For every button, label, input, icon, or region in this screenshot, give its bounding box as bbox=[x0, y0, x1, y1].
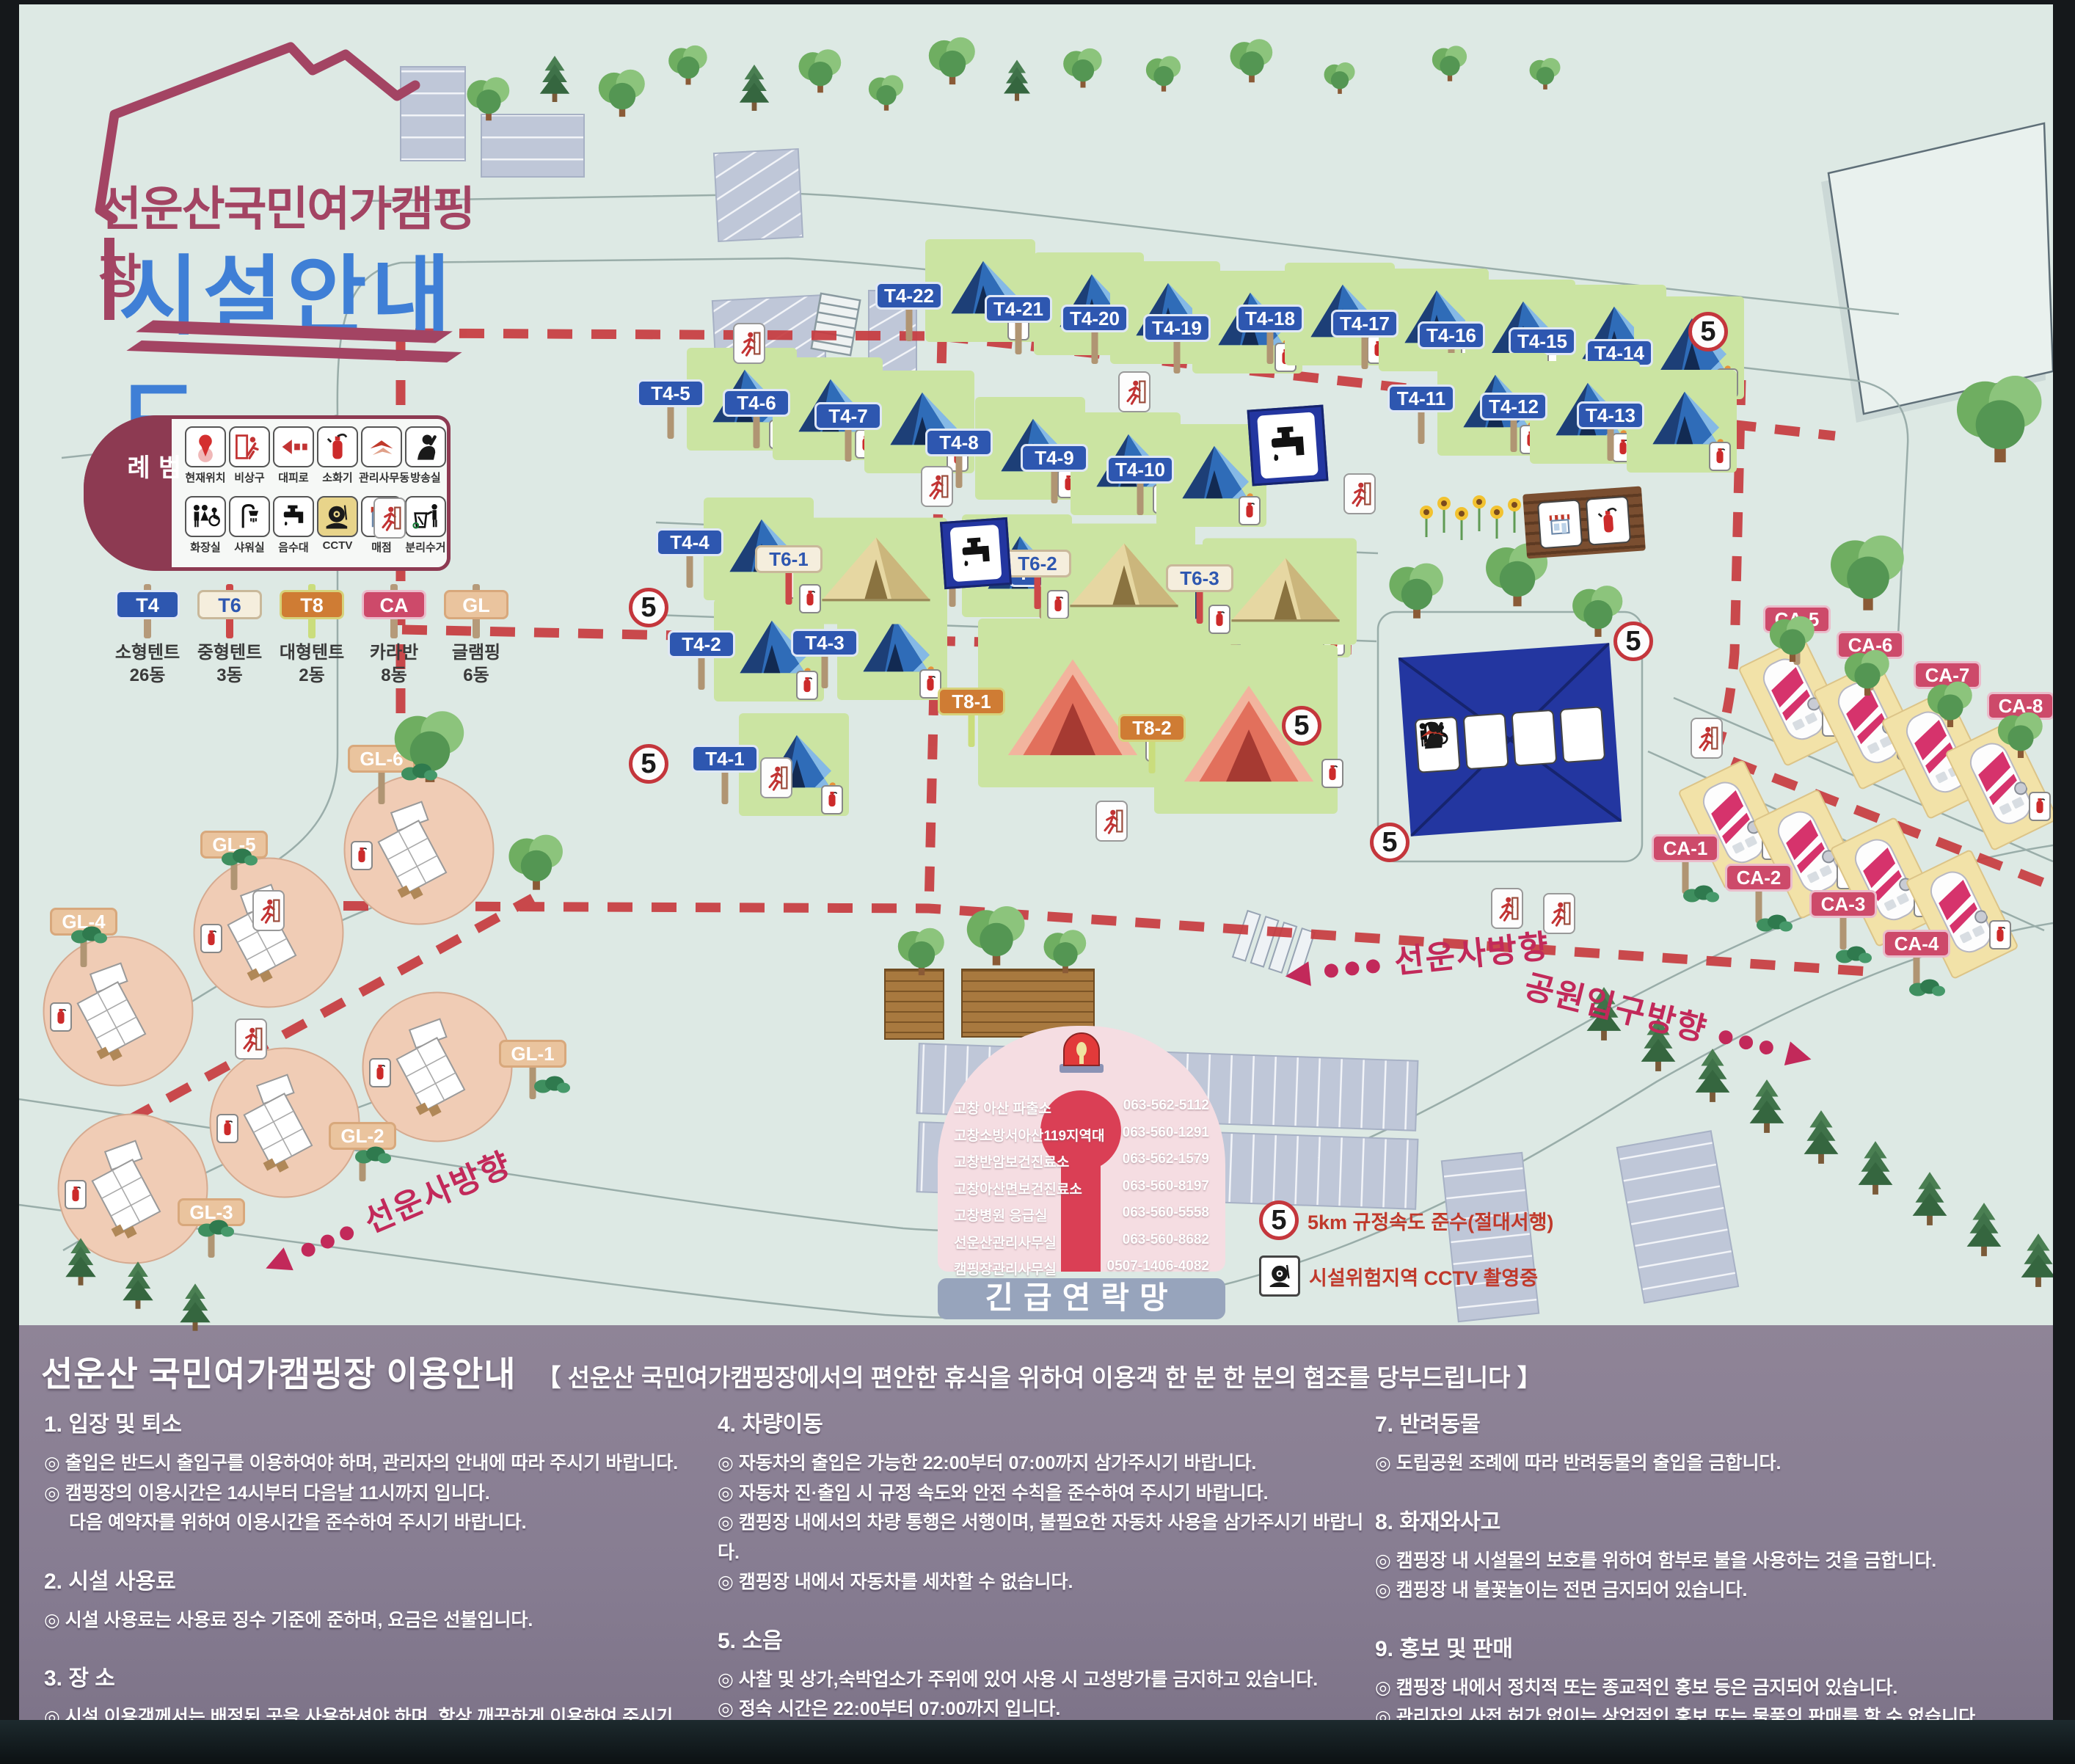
rule-item: ◎ 도립공원 조례에 따라 반려동물의 출입을 금합니다. bbox=[1375, 1448, 2043, 1479]
tree-pine bbox=[2019, 1232, 2053, 1293]
contact-phone: 063-562-5112 bbox=[1123, 1098, 1209, 1118]
rule-section: 9. 홍보 및 판매◎ 캠핑장 내에서 정치적 또는 종교적인 홍보 등은 금지… bbox=[1375, 1630, 2043, 1721]
contact-name: 선운산관리사무실 bbox=[954, 1232, 1057, 1252]
site-sign: T4-6 bbox=[723, 389, 790, 417]
site-sign: CA-1 bbox=[1652, 834, 1719, 862]
legend-item-pin: 현재위치 bbox=[183, 426, 228, 485]
tree-deciduous bbox=[1762, 608, 1822, 671]
tree-deciduous bbox=[500, 825, 572, 901]
office-icon bbox=[1511, 710, 1557, 767]
rule-section: 2. 시설 사용료◎ 시설 사용료는 사용료 징수 기준에 준하며, 요금은 선… bbox=[44, 1563, 690, 1636]
fire-extinguisher-icon bbox=[65, 1180, 87, 1209]
site-type-label: 글램핑6동 bbox=[436, 641, 517, 687]
site-sign: T4-3 bbox=[791, 629, 858, 657]
rule-item: ◎ 캠핑장 내에서 자동차를 세차할 수 없습니다. bbox=[718, 1567, 1371, 1597]
site-sign: T6-3 bbox=[1166, 564, 1233, 592]
tree-deciduous bbox=[922, 29, 983, 95]
rule-item: ◎ 캠핑장 내 불꽃놀이는 전면 금지되어 있습니다. bbox=[1375, 1575, 2043, 1606]
site-type-code: CA bbox=[362, 590, 426, 619]
site-type-code: GL bbox=[444, 590, 508, 619]
store-icon bbox=[1537, 499, 1583, 549]
tree-deciduous bbox=[591, 62, 653, 127]
legend-item-label: 관리사무동 bbox=[359, 470, 404, 485]
bush bbox=[1682, 881, 1720, 907]
contact-name: 고창 아산 파출소 bbox=[954, 1098, 1051, 1118]
legend-item-label: CCTV bbox=[315, 539, 360, 552]
rules-column-2: 4. 차량이동◎ 자동차의 출입은 가능한 22:00부터 07:00까지 삼가… bbox=[718, 1406, 1371, 1720]
usage-guide-header: 선운산 국민여가캠핑장 이용안내 【 선운산 국민여가캠핑장에서의 편안한 휴식… bbox=[41, 1346, 1542, 1396]
bush bbox=[70, 922, 108, 948]
fire-extinguisher-icon bbox=[369, 1058, 391, 1087]
rule-section-title: 7. 반려동물 bbox=[1375, 1406, 2043, 1438]
fire-extinguisher-icon bbox=[1239, 496, 1261, 525]
rule-item: 다음 예약자를 위하여 이용시간을 준수하여 주시기 바랍니다. bbox=[44, 1508, 690, 1538]
site-sign: T8-1 bbox=[938, 688, 1005, 715]
emergency-exit-icon bbox=[1095, 801, 1128, 842]
site-sign: T4-8 bbox=[925, 429, 993, 456]
drinking-fountain-1 bbox=[940, 517, 1012, 589]
broadcast-icon bbox=[405, 426, 446, 467]
fire-extinguisher-icon bbox=[351, 841, 373, 870]
rule-item: ◎ 시설 이용객께서는 배정된 곳을 사용하셔야 하며, 항상 깨끗하게 이용하… bbox=[44, 1702, 690, 1720]
fire-extinguisher-icon bbox=[796, 671, 818, 700]
site-sign: T4-7 bbox=[814, 402, 882, 430]
tree-deciduous bbox=[1820, 522, 1917, 624]
fire-extinguisher-icon bbox=[50, 1002, 72, 1032]
speed-limit-sign: 5 bbox=[1370, 823, 1410, 862]
fire-extinguisher-icon bbox=[216, 1114, 238, 1143]
bush bbox=[1834, 942, 1872, 968]
rule-section-title: 1. 입장 및 퇴소 bbox=[44, 1406, 690, 1438]
sign-frame-bottom bbox=[0, 1720, 2075, 1764]
site-type-gl: GL 글램핑6동 bbox=[436, 584, 517, 687]
rule-item: ◎ 자동차 진·출입 시 규정 속도와 안전 수칙을 준수하여 주시기 바랍니다… bbox=[718, 1479, 1371, 1509]
emergency-exit-icon bbox=[1543, 893, 1575, 934]
bush bbox=[400, 759, 438, 785]
legend-item-shower: 샤워실 bbox=[227, 496, 272, 555]
contact-phone: 063-560-8682 bbox=[1123, 1232, 1209, 1252]
speed-limit-sign: 5 bbox=[629, 744, 668, 784]
rule-item: ◎ 캠핑장 내 시설물의 보호를 위하여 함부로 불을 사용하는 것을 금합니다… bbox=[1375, 1546, 2043, 1576]
tree-deciduous bbox=[864, 69, 910, 119]
tree-deciduous bbox=[958, 896, 1035, 977]
site-sign: T4-21 bbox=[985, 295, 1052, 323]
site-sign: CA-3 bbox=[1809, 890, 1877, 918]
site-sign: T4-10 bbox=[1106, 456, 1174, 484]
site-sign: T4-22 bbox=[875, 282, 943, 310]
legend-label: 범 례 bbox=[120, 454, 183, 532]
shower-icon bbox=[229, 496, 270, 537]
site-sign: T4-9 bbox=[1021, 444, 1088, 472]
tap-icon bbox=[949, 525, 1002, 582]
tree-pine bbox=[64, 1236, 98, 1291]
cctv-icon bbox=[317, 496, 358, 537]
cctv-icon bbox=[1259, 1255, 1300, 1297]
site-sign: T8-2 bbox=[1118, 714, 1186, 742]
site-sign: T4-13 bbox=[1577, 401, 1644, 429]
glamping-footprint bbox=[364, 793, 474, 907]
site-type-code: T4 bbox=[115, 590, 180, 619]
emergency-contact-row: 고창아산면보건진료소063-560-8197 bbox=[954, 1178, 1209, 1198]
rule-item: ◎ 시설 사용료는 사용료 징수 기준에 준하며, 요금은 선불입니다. bbox=[44, 1606, 690, 1636]
speed-limit-sign: 5 bbox=[629, 588, 668, 627]
bush bbox=[1755, 911, 1793, 936]
legend-box: 범 례 현재위치 비상구 대피로 소화기 관리사무동 방송실 화장실 샤워실 bbox=[84, 415, 451, 571]
rule-section: 1. 입장 및 퇴소◎ 출입은 반드시 출입구를 이용하여야 하며, 관리자의 … bbox=[44, 1406, 690, 1538]
contact-name: 고창아산면보건진료소 bbox=[954, 1178, 1082, 1198]
tree-deciduous bbox=[891, 920, 952, 985]
usage-guide-subtitle: 【 선운산 국민여가캠핑장에서의 편안한 휴식을 위하여 이용객 한 분 한 분… bbox=[536, 1358, 1541, 1393]
emergency-exit-icon bbox=[373, 498, 406, 539]
legend-item-recycle: 분리수거 bbox=[403, 496, 448, 555]
contact-phone: 063-560-1291 bbox=[1123, 1125, 1209, 1145]
emergency-panel-title: 긴급연락망 bbox=[938, 1278, 1225, 1319]
tent-icon bbox=[1227, 552, 1344, 628]
restroom-icon bbox=[185, 496, 226, 537]
tree-pine bbox=[738, 63, 771, 117]
site-type-label: 카라반8동 bbox=[354, 641, 434, 687]
tree-pine bbox=[1002, 59, 1032, 106]
speed-note: 5 5km 규정속도 준수(절대서행) bbox=[1259, 1200, 1553, 1240]
legend-item-label: 현재위치 bbox=[183, 470, 228, 485]
fire-extinguisher-icon bbox=[2029, 792, 2051, 821]
site-sign: T4-15 bbox=[1509, 327, 1576, 355]
legend-item-arrow: 대피로 bbox=[271, 426, 316, 485]
legend-item-exit: 비상구 bbox=[227, 426, 272, 485]
fire-extinguisher-icon bbox=[1047, 590, 1069, 619]
fire-extinguisher-icon bbox=[799, 584, 821, 613]
emergency-exit-icon bbox=[760, 757, 792, 798]
legend-item-label: 방송실 bbox=[403, 470, 448, 485]
site-type-t8: T8 대형텐트2동 bbox=[271, 584, 352, 687]
legend-item-label: 음수대 bbox=[271, 539, 316, 555]
tree-deciduous bbox=[1944, 361, 2053, 478]
site-type-label: 대형텐트2동 bbox=[271, 641, 352, 687]
fire-extinguisher-icon bbox=[1208, 605, 1230, 634]
tree-deciduous bbox=[1920, 674, 1980, 737]
rule-section-title: 9. 홍보 및 판매 bbox=[1375, 1630, 2043, 1663]
rules-column-1: 1. 입장 및 퇴소◎ 출입은 반드시 출입구를 이용하여야 하며, 관리자의 … bbox=[44, 1406, 690, 1720]
siren-icon bbox=[1055, 1032, 1108, 1074]
rule-section-title: 5. 소음 bbox=[718, 1622, 1371, 1655]
tree-pine bbox=[1911, 1170, 1949, 1231]
rule-item: ◎ 정숙 시간은 22:00부터 07:00까지 입니다. bbox=[718, 1694, 1371, 1720]
tent-icon bbox=[1065, 537, 1183, 613]
ext-icon bbox=[1586, 496, 1631, 546]
rule-section-title: 3. 장 소 bbox=[44, 1660, 690, 1692]
rule-item: ◎ 자동차의 출입은 가능한 22:00부터 07:00까지 삼가주시기 바랍니… bbox=[718, 1448, 1371, 1479]
rule-section: 7. 반려동물◎ 도립공원 조례에 따라 반려동물의 출입을 금합니다. bbox=[1375, 1406, 2043, 1479]
site-sign: T4-5 bbox=[637, 379, 704, 407]
tree-deciduous bbox=[1057, 42, 1109, 97]
ext-icon bbox=[317, 426, 358, 467]
bush bbox=[220, 845, 258, 870]
emergency-contact-row: 고창병원 응급실063-560-5558 bbox=[954, 1205, 1209, 1225]
emergency-contact-row: 선운산관리사무실063-560-8682 bbox=[954, 1232, 1209, 1252]
emergency-contacts-panel: 고창 아산 파출소063-562-5112고창소방서아산119지역대063-56… bbox=[938, 1026, 1225, 1319]
site-sign: T4-12 bbox=[1480, 393, 1547, 420]
campground-map: T4-22 T4-21 T4-20 T4-19 T4-18 T4-17 T4-1… bbox=[19, 4, 2053, 1325]
legend-item-label: 분리수거 bbox=[403, 539, 448, 555]
fire-extinguisher-icon bbox=[1989, 920, 2011, 950]
speed-limit-sign: 5 bbox=[1282, 706, 1321, 746]
facility-map-sign: T4-22 T4-21 T4-20 T4-19 T4-18 T4-17 T4-1… bbox=[19, 4, 2053, 1720]
emergency-contact-row: 고창소방서아산119지역대063-560-1291 bbox=[954, 1125, 1209, 1145]
shower-icon bbox=[1463, 712, 1509, 770]
contact-name: 고창소방서아산119지역대 bbox=[954, 1125, 1104, 1145]
tree-deciduous bbox=[1037, 922, 1094, 983]
tent-icon bbox=[817, 531, 935, 608]
fire-extinguisher-icon bbox=[200, 924, 222, 953]
emergency-exit-icon bbox=[733, 323, 765, 364]
legend-item-label: 매점 bbox=[359, 539, 404, 555]
emergency-exit-icon bbox=[1691, 718, 1723, 759]
glamping-footprint bbox=[78, 1132, 188, 1246]
site-type-ca: CA 카라반8동 bbox=[354, 584, 434, 687]
legend-grid: 현재위치 비상구 대피로 소화기 관리사무동 방송실 화장실 샤워실 음수대 C… bbox=[183, 426, 447, 566]
tree-deciduous bbox=[1525, 53, 1566, 98]
legend-item-label: 비상구 bbox=[227, 470, 272, 485]
site-sign: T4-19 bbox=[1143, 314, 1211, 342]
emergency-exit-icon bbox=[1343, 473, 1376, 514]
tree-deciduous bbox=[1381, 554, 1453, 630]
rule-section: 3. 장 소◎ 시설 이용객께서는 배정된 곳을 사용하셔야 하며, 항상 깨끗… bbox=[44, 1660, 690, 1720]
contact-name: 캠핑장관리사무실 bbox=[954, 1258, 1057, 1278]
tree-deciduous bbox=[1427, 40, 1473, 90]
rule-section-title: 4. 차량이동 bbox=[718, 1406, 1371, 1438]
legend-item-label: 샤워실 bbox=[227, 539, 272, 555]
tree-pine bbox=[1856, 1140, 1895, 1200]
bush bbox=[197, 1216, 235, 1242]
legend-item-broadcast: 방송실 bbox=[403, 426, 448, 485]
glamping-footprint bbox=[382, 1010, 492, 1124]
site-sign: T4-16 bbox=[1418, 321, 1485, 349]
rule-item: ◎ 캠핑장의 이용시간은 14시부터 다음날 11시까지 입니다. bbox=[44, 1479, 690, 1509]
rule-item: ◎ 관리자의 사전 허가 없이는 상업적인 홍보 또는 물품의 판매를 할 수 … bbox=[1375, 1702, 2043, 1720]
legend-item-ext: 소화기 bbox=[315, 426, 360, 485]
rule-item: ◎ 사찰 및 상가,숙박업소가 주위에 있어 사용 시 고성방가를 금지하고 있… bbox=[718, 1665, 1371, 1695]
bush bbox=[533, 1072, 571, 1098]
tap-icon bbox=[273, 496, 314, 537]
tree-deciduous bbox=[1319, 57, 1360, 102]
tree-deciduous bbox=[1141, 50, 1187, 100]
rule-item: ◎ 캠핑장 내에서의 차량 통행은 서행이며, 불필요한 자동차 사용을 삼가주… bbox=[718, 1508, 1371, 1567]
legend-item-label: 소화기 bbox=[315, 470, 360, 485]
site-type-code: T8 bbox=[280, 590, 344, 619]
restroom-building bbox=[1398, 643, 1622, 836]
site-sign: GL-1 bbox=[499, 1040, 566, 1068]
contact-phone: 063-560-5558 bbox=[1123, 1205, 1209, 1225]
sign-title-block: 선운산국민여가캠핑장 시설안내도 bbox=[48, 26, 503, 335]
rule-item: ◎ 출입은 반드시 출입구를 이용하여야 하며, 관리자의 안내에 따라 주시기… bbox=[44, 1448, 690, 1479]
emergency-exit-icon bbox=[235, 1018, 267, 1060]
site-sign: T4-17 bbox=[1331, 310, 1398, 338]
cctv-note-text: 시설위험지역 CCTV 촬영중 bbox=[1309, 1262, 1538, 1291]
legend-item-cctv: CCTV bbox=[315, 496, 360, 552]
tree-pine bbox=[121, 1260, 155, 1314]
fire-extinguisher-icon bbox=[1321, 759, 1343, 788]
emergency-contact-row: 캠핑장관리사무실0507-1406-4082 bbox=[954, 1258, 1209, 1278]
rules-column-3: 7. 반려동물◎ 도립공원 조례에 따라 반려동물의 출입을 금합니다.8. 화… bbox=[1375, 1406, 2043, 1720]
site-sign: CA-2 bbox=[1725, 864, 1793, 892]
tree-deciduous bbox=[1991, 704, 2050, 768]
store-building bbox=[1522, 486, 1646, 558]
speed-limit-sign: 5 bbox=[1613, 622, 1653, 661]
site-type-t4: T4 소형텐트26동 bbox=[107, 584, 188, 687]
tree-pine bbox=[178, 1282, 212, 1336]
cctv-note: 시설위험지역 CCTV 촬영중 bbox=[1259, 1255, 1538, 1297]
legend-item-restroom: 화장실 bbox=[183, 496, 228, 555]
fire-extinguisher-icon bbox=[821, 785, 843, 814]
tree-deciduous bbox=[663, 39, 714, 94]
tree-deciduous bbox=[792, 42, 849, 102]
emergency-contact-row: 고창반암보건진료소063-562-1579 bbox=[954, 1151, 1209, 1171]
arrow-icon bbox=[273, 426, 314, 467]
speed-limit-sign: 5 bbox=[1688, 312, 1728, 351]
contact-phone: 063-560-8197 bbox=[1123, 1178, 1209, 1198]
site-sign: T6-1 bbox=[755, 545, 823, 573]
site-sign: T4-1 bbox=[691, 745, 759, 773]
tree-deciduous bbox=[461, 70, 517, 130]
site-type-legend: T4 소형텐트26동 T6 중형텐트3동 T8 대형텐트2동 CA 카라반8동 … bbox=[107, 584, 518, 709]
usage-guide-title: 선운산 국민여가캠핑장 이용안내 bbox=[41, 1346, 516, 1396]
recycle-icon bbox=[405, 496, 446, 537]
site-sign: T4-11 bbox=[1387, 384, 1455, 412]
office-icon bbox=[361, 426, 402, 467]
usage-guide-panel: 선운산 국민여가캠핑장 이용안내 【 선운산 국민여가캠핑장에서의 편안한 휴식… bbox=[19, 1325, 2053, 1720]
glamping-footprint bbox=[63, 955, 173, 1068]
legend-item-office: 관리사무동 bbox=[359, 426, 404, 485]
site-sign: T4-20 bbox=[1061, 305, 1128, 332]
speed-note-text: 5km 규정속도 준수(절대서행) bbox=[1308, 1206, 1553, 1235]
bush bbox=[1908, 975, 1946, 1001]
rule-section-title: 8. 화재와사고 bbox=[1375, 1504, 2043, 1536]
exit-icon bbox=[229, 426, 270, 467]
tree-pine bbox=[1965, 1201, 2003, 1262]
rule-section-title: 2. 시설 사용료 bbox=[44, 1563, 690, 1595]
legend-item-label: 화장실 bbox=[183, 539, 228, 555]
speed-limit-icon: 5 bbox=[1259, 1200, 1299, 1240]
bush bbox=[354, 1142, 392, 1168]
rule-section: 4. 차량이동◎ 자동차의 출입은 가능한 22:00부터 07:00까지 삼가… bbox=[718, 1406, 1371, 1597]
contact-phone: 063-562-1579 bbox=[1123, 1151, 1209, 1171]
title-accent-bar bbox=[104, 238, 114, 320]
site-type-label: 소형텐트26동 bbox=[107, 641, 188, 687]
site-type-t6: T6 중형텐트3동 bbox=[189, 584, 270, 687]
tap-icon bbox=[1257, 412, 1319, 478]
emergency-exit-icon bbox=[252, 890, 285, 931]
site-type-label: 중형텐트3동 bbox=[189, 641, 270, 687]
legend-item-label: 대피로 bbox=[271, 470, 316, 485]
glamping-footprint bbox=[230, 1066, 340, 1180]
tree-pine bbox=[1802, 1109, 1840, 1170]
legend-item-tap: 음수대 bbox=[271, 496, 316, 555]
contact-phone: 0507-1406-4082 bbox=[1107, 1258, 1209, 1278]
site-sign: T6-2 bbox=[1004, 550, 1071, 577]
broadcast-icon bbox=[1559, 706, 1605, 763]
pin-icon bbox=[185, 426, 226, 467]
emergency-contact-list: 고창 아산 파출소063-562-5112고창소방서아산119지역대063-56… bbox=[954, 1098, 1209, 1286]
tree-pine bbox=[539, 54, 572, 108]
drinking-fountain-2 bbox=[1247, 404, 1328, 486]
emergency-contact-row: 고창 아산 파출소063-562-5112 bbox=[954, 1098, 1209, 1118]
emergency-exit-icon bbox=[921, 466, 953, 507]
rule-section: 8. 화재와사고◎ 캠핑장 내 시설물의 보호를 위하여 함부로 불을 사용하는… bbox=[1375, 1504, 2043, 1606]
tent-icon bbox=[1002, 652, 1145, 762]
site-type-code: T6 bbox=[197, 590, 262, 619]
tree-deciduous bbox=[1224, 32, 1280, 92]
fire-extinguisher-icon bbox=[1709, 442, 1731, 471]
direction-label-0: ◀ ●●● 선운사방향 bbox=[1282, 919, 1551, 994]
site-sign: T4-18 bbox=[1236, 305, 1304, 332]
tree-pine bbox=[1748, 1078, 1786, 1139]
rule-section: 5. 소음◎ 사찰 및 상가,숙박업소가 주위에 있어 사용 시 고성방가를 금… bbox=[718, 1622, 1371, 1721]
rule-item: ◎ 캠핑장 내에서 정치적 또는 종교적인 홍보 등은 금지되어 있습니다. bbox=[1375, 1673, 2043, 1703]
contact-name: 고창병원 응급실 bbox=[954, 1205, 1048, 1225]
site-sign: T4-4 bbox=[656, 528, 723, 556]
contact-name: 고창반암보건진료소 bbox=[954, 1151, 1069, 1171]
site-sign: CA-4 bbox=[1883, 930, 1950, 958]
signboard: T4-22 T4-21 T4-20 T4-19 T4-18 T4-17 T4-1… bbox=[0, 0, 2075, 1764]
tree-deciduous bbox=[1837, 642, 1897, 705]
emergency-exit-icon bbox=[1118, 371, 1150, 412]
site-sign: T4-2 bbox=[668, 630, 735, 658]
